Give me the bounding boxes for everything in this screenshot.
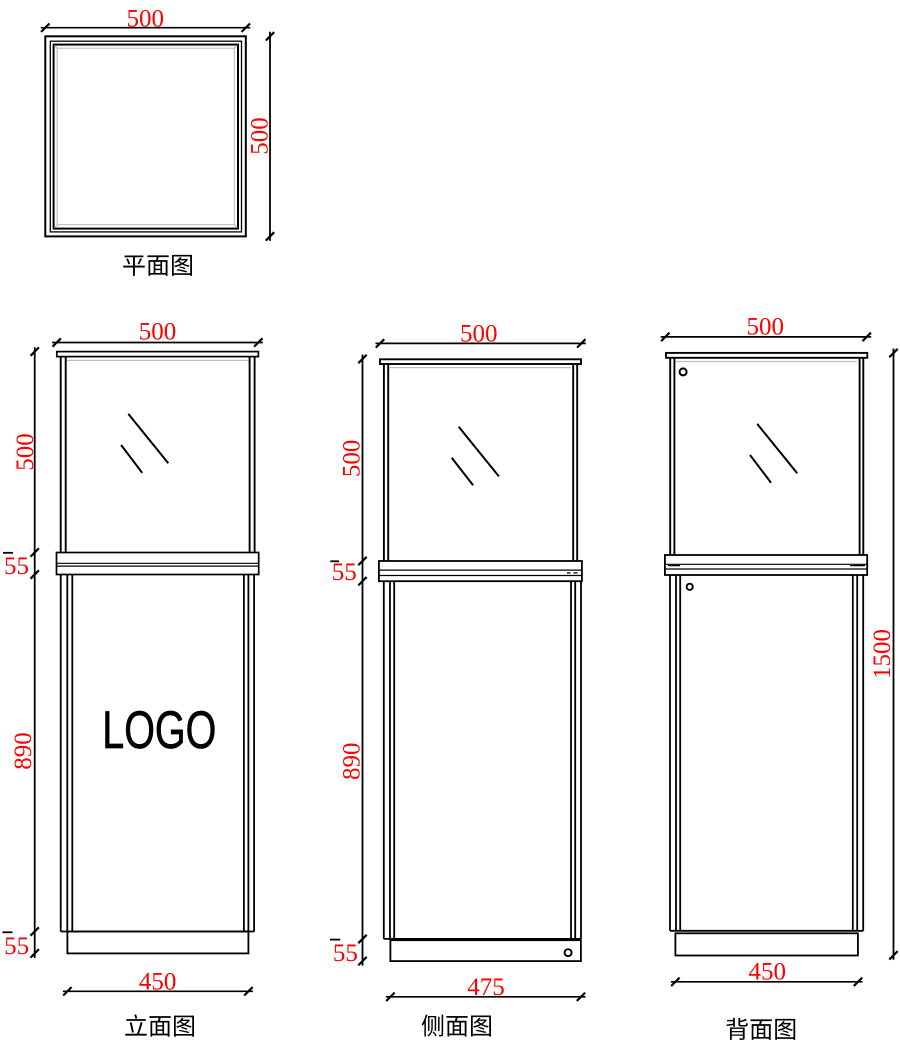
svg-text:500: 500 — [139, 319, 177, 346]
svg-text:500: 500 — [747, 314, 785, 341]
svg-text:55: 55 — [332, 559, 357, 586]
svg-text:450: 450 — [139, 969, 177, 996]
svg-text:500: 500 — [247, 117, 274, 155]
svg-text:475: 475 — [467, 974, 505, 1001]
svg-text:500: 500 — [460, 321, 498, 348]
svg-text:1500: 1500 — [869, 629, 896, 679]
svg-text:LOGO: LOGO — [102, 700, 216, 759]
svg-text:500: 500 — [12, 433, 39, 471]
svg-text:500: 500 — [127, 5, 165, 32]
svg-text:55: 55 — [4, 553, 29, 580]
svg-text:55: 55 — [333, 940, 358, 967]
svg-text:450: 450 — [749, 959, 787, 986]
svg-text:890: 890 — [339, 742, 366, 780]
svg-text:890: 890 — [10, 732, 37, 770]
svg-text:55: 55 — [4, 933, 29, 960]
svg-text:500: 500 — [339, 440, 366, 478]
